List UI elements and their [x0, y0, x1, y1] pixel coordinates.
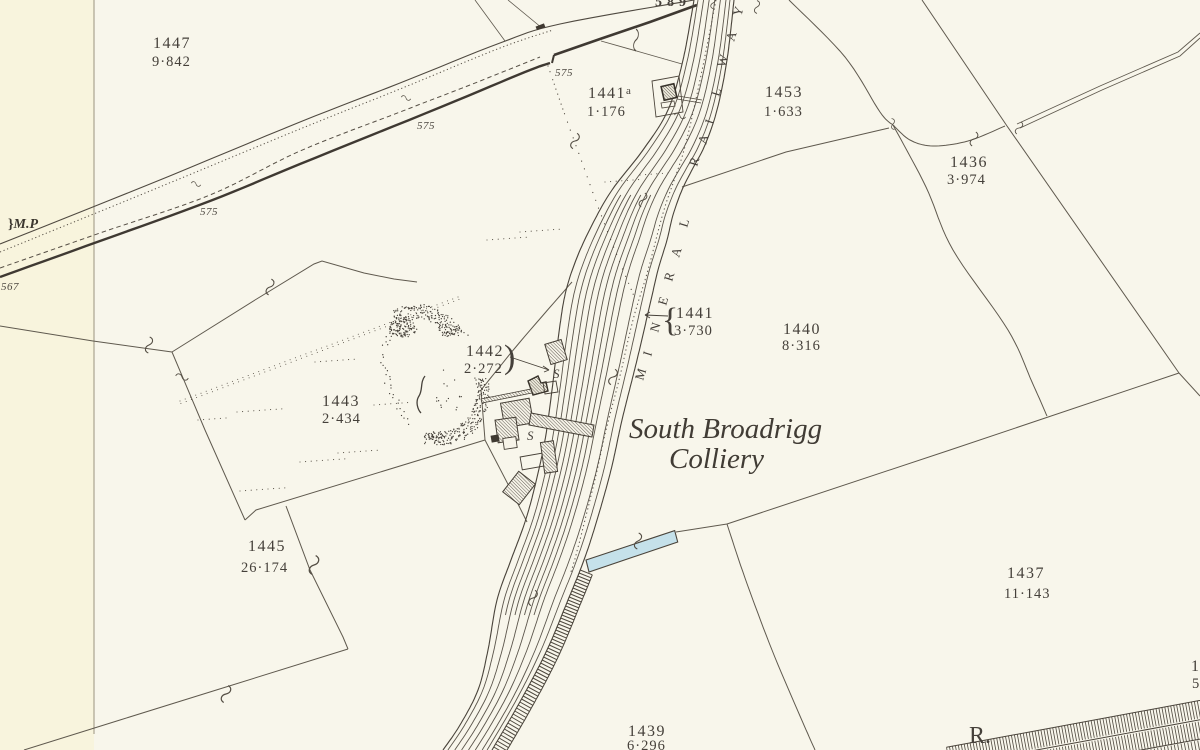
svg-text:1436: 1436: [950, 154, 988, 171]
svg-text:2·272: 2·272: [464, 361, 503, 377]
svg-text:11·143: 11·143: [1004, 586, 1051, 602]
svg-text:3·730: 3·730: [674, 323, 713, 339]
svg-text:1·633: 1·633: [764, 104, 803, 120]
svg-text:575: 575: [555, 67, 573, 79]
svg-text:1445: 1445: [248, 538, 286, 555]
svg-text:S: S: [553, 366, 560, 381]
svg-text:1442: 1442: [466, 343, 504, 360]
svg-text:575: 575: [200, 206, 218, 218]
svg-text:S: S: [527, 428, 534, 443]
svg-text:2·434: 2·434: [322, 411, 361, 427]
svg-text:1441: 1441: [676, 305, 714, 322]
svg-text:Colliery: Colliery: [669, 443, 764, 475]
svg-text:1447: 1447: [153, 35, 191, 52]
svg-text:1·176: 1·176: [587, 104, 626, 120]
svg-text:6·296: 6·296: [627, 738, 666, 750]
svg-text:}M.P: }M.P: [8, 217, 38, 232]
svg-text:{: {: [662, 302, 678, 339]
svg-text:1453: 1453: [765, 84, 803, 101]
svg-text:9·842: 9·842: [152, 54, 191, 70]
svg-text:575: 575: [417, 120, 435, 132]
svg-text:8·316: 8·316: [782, 338, 821, 354]
svg-text:R.: R.: [969, 723, 991, 749]
svg-text:3·974: 3·974: [947, 172, 986, 188]
svg-text:589: 589: [655, 0, 691, 10]
svg-text:5·: 5·: [1192, 676, 1200, 692]
svg-text:South Broadrigg: South Broadrigg: [629, 413, 822, 445]
svg-text:1443: 1443: [322, 393, 360, 410]
svg-text:1440: 1440: [783, 321, 821, 338]
svg-text:26·174: 26·174: [241, 560, 288, 576]
svg-text:14: 14: [1191, 658, 1200, 675]
svg-text:1437: 1437: [1007, 565, 1045, 582]
svg-text:): ): [504, 339, 515, 376]
svg-text:567: 567: [1, 281, 19, 293]
svg-text:1441a: 1441a: [588, 85, 632, 102]
